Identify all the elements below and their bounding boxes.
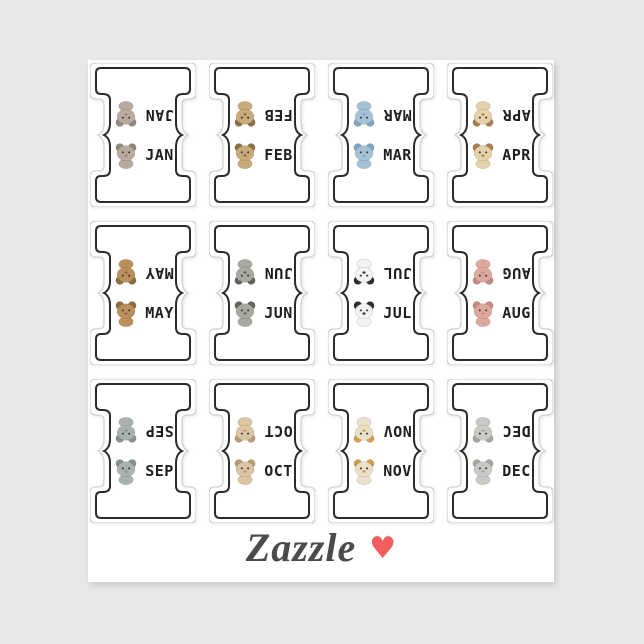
sticker-grid: JAN JAN — [88, 60, 554, 523]
sticker-sheet: JAN JAN — [88, 60, 554, 582]
tab-label-top-inverted: JUL — [340, 254, 422, 292]
sticker-tab-dec: DEC DEC — [447, 379, 553, 523]
sticker-tab-jun: JUN JUN — [209, 221, 315, 365]
month-label: OCT — [264, 464, 293, 479]
whale-icon — [350, 101, 378, 129]
month-label-inverted: DEC — [502, 424, 531, 439]
month-label: FEB — [264, 148, 293, 163]
snail-icon — [469, 141, 497, 169]
month-label-inverted: APR — [502, 108, 531, 123]
tab-label-top-inverted: AUG — [459, 254, 541, 292]
sticker-tab-nov: NOV NOV — [328, 379, 434, 523]
hippo-icon — [112, 417, 140, 445]
month-label-inverted: JUL — [383, 266, 412, 281]
tab-diecut-shape — [209, 379, 315, 523]
bunny-icon — [231, 417, 259, 445]
tab-label-top-inverted: MAR — [340, 96, 422, 134]
raccoon-icon — [231, 299, 259, 327]
tab-diecut-shape — [447, 63, 553, 207]
product-image-canvas: JAN JAN — [0, 0, 644, 644]
month-label: JUL — [383, 306, 412, 321]
month-label-inverted: FEB — [264, 108, 293, 123]
sticker-tab-jan: JAN JAN — [90, 63, 196, 207]
tab-diecut-shape — [90, 63, 196, 207]
tab-label-bottom: DEC — [459, 452, 541, 490]
hippo-icon — [112, 457, 140, 485]
tab-diecut-shape — [209, 221, 315, 365]
tab-printed-outline — [96, 68, 190, 202]
sticker-tab-apr: APR APR — [447, 63, 553, 207]
owl-icon — [231, 141, 259, 169]
month-label-inverted: NOV — [383, 424, 412, 439]
tab-printed-outline — [215, 226, 309, 360]
month-label: SEP — [145, 464, 174, 479]
sticker-tab-may: MAY MAY — [90, 221, 196, 365]
tab-diecut-shape — [209, 63, 315, 207]
octopus-icon — [469, 299, 497, 327]
goose-icon — [350, 457, 378, 485]
tab-label-bottom: NOV — [340, 452, 422, 490]
sticker-tab-sep: SEP SEP — [90, 379, 196, 523]
month-label: APR — [502, 148, 531, 163]
month-label-inverted: JUN — [264, 266, 293, 281]
tab-label-top-inverted: MAY — [102, 254, 184, 292]
month-label-inverted: AUG — [502, 266, 531, 281]
sticker-tab-mar: MAR MAR — [328, 63, 434, 207]
tab-printed-outline — [334, 384, 428, 518]
tab-label-bottom: OCT — [221, 452, 303, 490]
tab-diecut-shape — [447, 379, 553, 523]
tab-diecut-shape — [328, 63, 434, 207]
tab-label-bottom: JUN — [221, 294, 303, 332]
octopus-icon — [469, 259, 497, 287]
zazzle-logo: Zazzle — [246, 528, 356, 568]
heart-icon: ♥ — [369, 532, 396, 564]
tab-label-bottom: APR — [459, 136, 541, 174]
tab-printed-outline — [334, 226, 428, 360]
month-label-inverted: MAR — [383, 108, 412, 123]
tab-label-top-inverted: FEB — [221, 96, 303, 134]
month-label: DEC — [502, 464, 531, 479]
month-label: NOV — [383, 464, 412, 479]
sticker-tab-oct: OCT OCT — [209, 379, 315, 523]
month-label-inverted: OCT — [264, 424, 293, 439]
month-label-inverted: MAY — [145, 266, 174, 281]
month-label: MAY — [145, 306, 174, 321]
tab-diecut-shape — [90, 379, 196, 523]
tab-printed-outline — [453, 68, 547, 202]
koala-icon — [112, 141, 140, 169]
sloth-icon — [112, 299, 140, 327]
tab-label-bottom: FEB — [221, 136, 303, 174]
branding-row: Zazzle ♥ — [88, 522, 554, 574]
tab-printed-outline — [215, 68, 309, 202]
goose-icon — [350, 417, 378, 445]
bunny-icon — [231, 457, 259, 485]
month-label-inverted: SEP — [145, 424, 174, 439]
tab-printed-outline — [215, 384, 309, 518]
tab-label-top-inverted: JUN — [221, 254, 303, 292]
elephant-icon — [469, 457, 497, 485]
tab-label-top-inverted: SEP — [102, 412, 184, 450]
tab-diecut-shape — [328, 379, 434, 523]
tab-printed-outline — [96, 226, 190, 360]
tab-printed-outline — [334, 68, 428, 202]
tab-label-top-inverted: DEC — [459, 412, 541, 450]
owl-icon — [231, 101, 259, 129]
snail-icon — [469, 101, 497, 129]
month-label: JUN — [264, 306, 293, 321]
tab-label-bottom: JUL — [340, 294, 422, 332]
tab-label-bottom: AUG — [459, 294, 541, 332]
tab-diecut-shape — [447, 221, 553, 365]
month-label-inverted: JAN — [145, 108, 174, 123]
month-label: AUG — [502, 306, 531, 321]
tab-diecut-shape — [90, 221, 196, 365]
sticker-tab-jul: JUL JUL — [328, 221, 434, 365]
month-label: MAR — [383, 148, 412, 163]
koala-icon — [112, 101, 140, 129]
tab-label-top-inverted: APR — [459, 96, 541, 134]
tab-label-bottom: MAY — [102, 294, 184, 332]
tab-printed-outline — [96, 384, 190, 518]
panda-icon — [350, 299, 378, 327]
tab-label-bottom: JAN — [102, 136, 184, 174]
tab-diecut-shape — [328, 221, 434, 365]
sticker-tab-feb: FEB FEB — [209, 63, 315, 207]
sloth-icon — [112, 259, 140, 287]
raccoon-icon — [231, 259, 259, 287]
tab-label-top-inverted: OCT — [221, 412, 303, 450]
whale-icon — [350, 141, 378, 169]
tab-label-top-inverted: JAN — [102, 96, 184, 134]
tab-label-bottom: SEP — [102, 452, 184, 490]
tab-printed-outline — [453, 226, 547, 360]
tab-label-top-inverted: NOV — [340, 412, 422, 450]
tab-printed-outline — [453, 384, 547, 518]
elephant-icon — [469, 417, 497, 445]
tab-label-bottom: MAR — [340, 136, 422, 174]
month-label: JAN — [145, 148, 174, 163]
sticker-tab-aug: AUG AUG — [447, 221, 553, 365]
panda-icon — [350, 259, 378, 287]
